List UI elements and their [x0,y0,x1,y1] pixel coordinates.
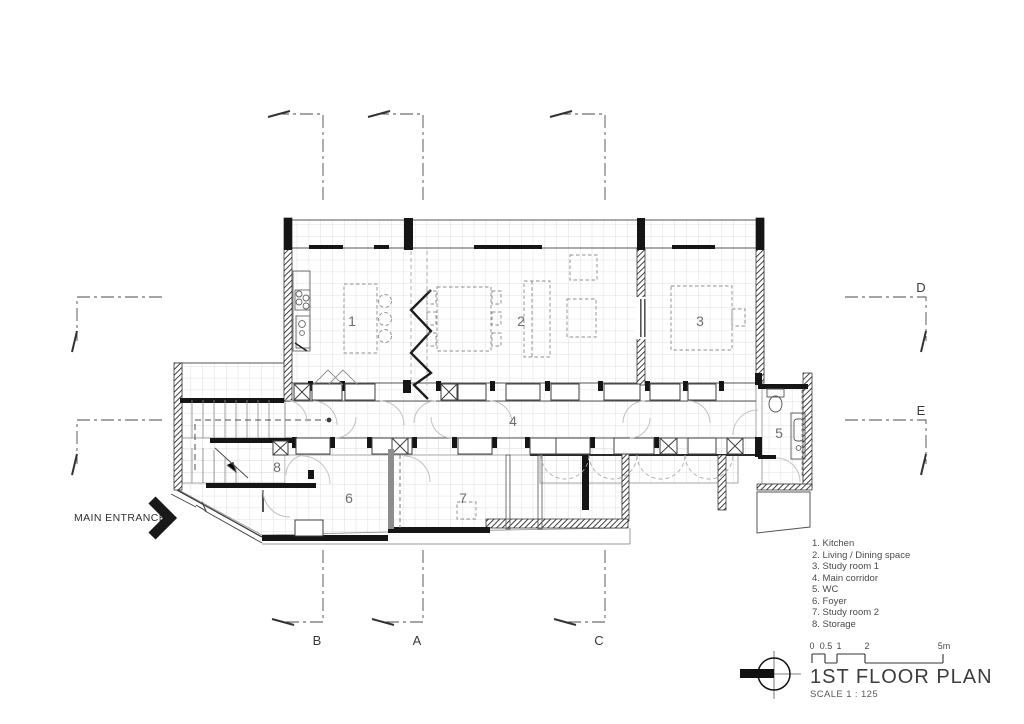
scale-tick: 0.5 [820,641,833,651]
north-indicator-icon [740,651,801,699]
legend-item: 5. WC [812,584,839,595]
grid-letter-e: E [917,403,926,418]
pocket-door [635,297,647,339]
scale-tick: 1 [836,641,841,651]
legend-item: 7. Study room 2 [812,607,879,618]
grid-line-b-top [278,114,323,200]
room-label-storage: 8 [273,459,281,475]
legend-item: 3. Study room 1 [812,561,879,572]
room-label-study1: 3 [696,313,704,329]
legend-item: 1. Kitchen [812,538,854,549]
main-entrance-label: MAIN ENTRANCE [74,512,166,524]
legend-item: 2. Living / Dining space [812,550,910,561]
grid-line-e-right [845,420,926,464]
scale-tick: 0 [809,641,814,651]
main-entrance-annotation: MAIN ENTRANCE [74,500,170,536]
room-label-living-dining: 2 [517,313,525,329]
legend: 1. Kitchen 2. Living / Dining space 3. S… [812,538,910,630]
veranda-deck [285,220,764,248]
grid-line-a-top [378,114,423,200]
grid-line-b-bottom [282,550,323,622]
scale-tick: 2 [864,641,869,651]
room-label-kitchen: 1 [348,313,356,329]
legend-item: 6. Foyer [812,596,847,607]
grid-line-d-right [845,297,926,341]
grid-letter-d: D [916,280,925,295]
plan-title: 1ST FLOOR PLAN [810,666,993,688]
grid-line-e-left [77,420,162,464]
canopy-line-end-dot [327,418,332,423]
legend-item: 4. Main corridor [812,573,878,584]
grid-line-a-bottom [382,550,423,622]
scale-bar: 0 0.5 1 2 5m [809,641,950,663]
grid-letter-b: B [313,633,322,648]
floor-plan-drawing: B A C D E [0,0,1024,724]
room-label-foyer: 6 [345,490,353,506]
se-deck-trapezoid [757,492,810,533]
grid-line-c-top [560,114,605,200]
room-label-wc: 5 [775,425,783,441]
grid-line-c-bottom [564,550,605,622]
grid-line-d-left [77,297,162,341]
scale-tick: 5m [938,641,951,651]
room-label-corridor: 4 [509,413,517,429]
legend-item: 8. Storage [812,619,856,630]
plan-scale-note: SCALE 1 : 125 [810,689,878,700]
grid-letter-a: A [413,633,422,648]
floor-plan-sheet: B A C D E [0,0,1024,724]
room-label-study2: 7 [459,490,467,506]
grid-letter-c: C [594,633,603,648]
